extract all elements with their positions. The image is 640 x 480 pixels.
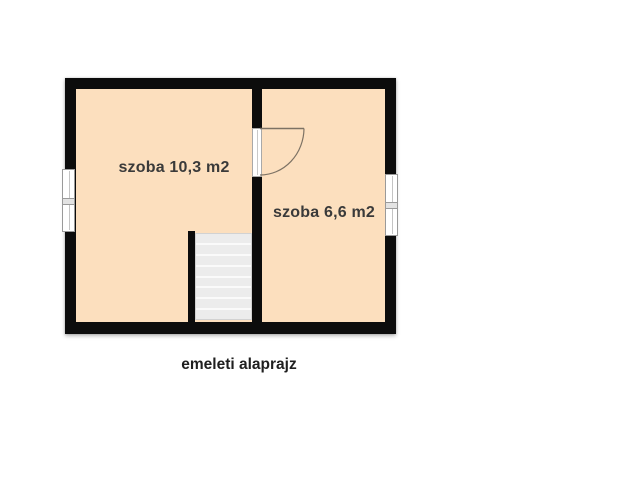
room-2-label: szoba 6,6 m2 [273,204,375,222]
stair-step [196,276,251,287]
window-right [385,174,398,236]
door-frame-line [257,130,258,175]
window-mullion [63,198,74,205]
stair-step [196,243,251,254]
floorplan-canvas: szoba 10,3 m2 szoba 6,6 m2 emeleti alapr… [0,0,640,480]
stair-step [196,254,251,265]
door-frame [252,128,262,177]
stair-step [196,308,251,319]
stair-step [196,234,251,243]
stair-step [196,297,251,308]
window-mullion [386,202,397,209]
interior-wall-lower [252,177,262,322]
staircase [195,233,252,320]
stair-side-wall [188,231,195,322]
window-left [62,169,75,232]
interior-wall-upper [252,89,262,128]
room-1-label: szoba 10,3 m2 [118,159,229,177]
stair-step [196,265,251,276]
stair-step [196,286,251,297]
plan-caption: emeleti alaprajz [181,356,296,374]
